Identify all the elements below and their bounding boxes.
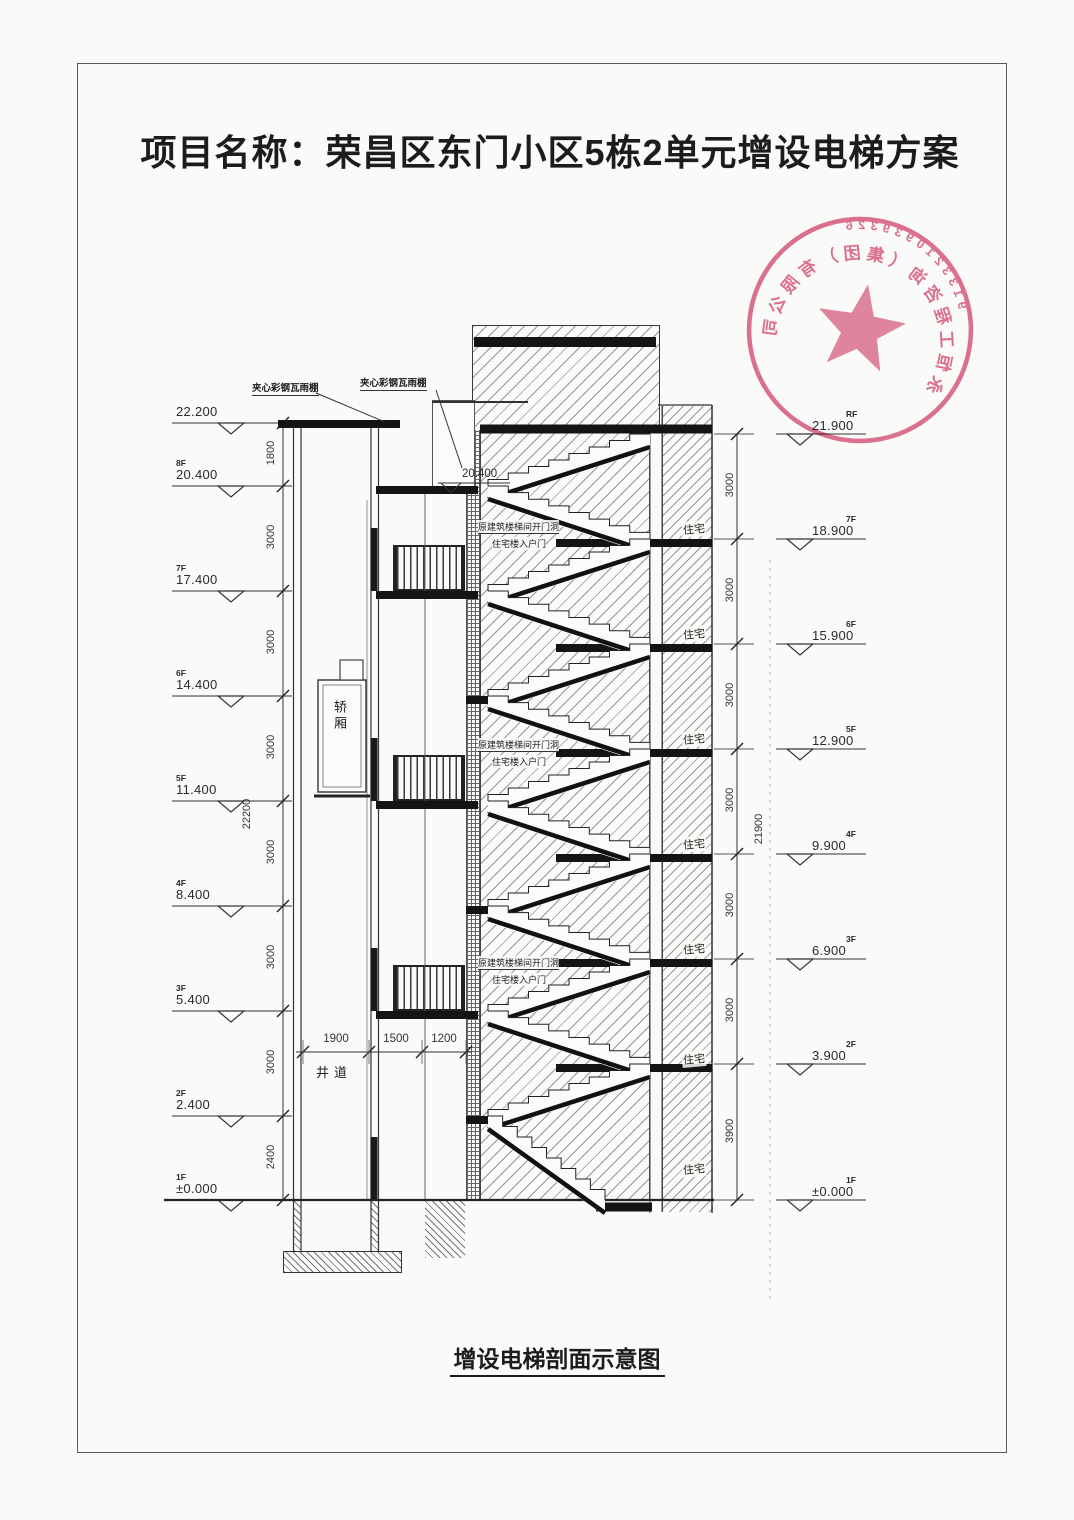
- floor-label: 3F: [846, 934, 856, 944]
- elevation-left: 17.400: [176, 572, 218, 587]
- dim-shaft-width: 1900: [311, 1033, 361, 1045]
- dim-left: 3000: [265, 830, 277, 874]
- residence-label: 住宅: [681, 625, 706, 643]
- residence-label: 住宅: [681, 1160, 706, 1178]
- dim-bridge-width: 1500: [371, 1033, 421, 1045]
- shaft-label: 井道: [316, 1062, 352, 1081]
- residence-label: 住宅: [681, 520, 706, 538]
- elevation-left: ±0.000: [176, 1181, 217, 1196]
- stair-door-note2: 住宅楼入户门: [492, 537, 546, 550]
- stair-door-note: 原建筑楼梯间开门洞: [478, 520, 559, 533]
- pit-wall-right: [371, 1200, 378, 1251]
- dim-right: 3000: [724, 988, 736, 1032]
- residence-label: 住宅: [681, 940, 706, 958]
- dim-right-total: 21900: [753, 807, 765, 851]
- residence-label: 住宅: [681, 1050, 706, 1068]
- elevation-left: 11.400: [176, 782, 217, 797]
- elevation-left: 2.400: [176, 1097, 210, 1112]
- stamp-star-icon: [810, 277, 911, 375]
- canopy-annotation: 夹心彩钢瓦雨棚: [360, 375, 427, 391]
- dim-left: 3000: [265, 935, 277, 979]
- elevation-mid-landing: 20.400: [462, 468, 497, 480]
- dim-left: 3000: [265, 725, 277, 769]
- elevation-left: 20.400: [176, 467, 218, 482]
- residence-label: 住宅: [681, 835, 706, 853]
- elevation-left-rooftop: 22.200: [176, 404, 218, 419]
- elevation-right: 12.900: [812, 733, 854, 748]
- stair-door-note: 原建筑楼梯间开门洞: [478, 738, 559, 751]
- dim-left: 3000: [265, 515, 277, 559]
- elevation-left: 8.400: [176, 887, 210, 902]
- residence-label: 住宅: [681, 730, 706, 748]
- drawing-sheet: 项目名称：荣昌区东门小区5栋2单元增设电梯方案 22.200 8F 20.400…: [0, 0, 1074, 1520]
- elevator-car-label: 轿厢: [330, 700, 349, 770]
- elevation-right: 9.900: [812, 838, 846, 853]
- dim-left: 1800: [265, 431, 277, 475]
- elevation-right: ±0.000: [812, 1184, 853, 1199]
- elevation-right: 18.900: [812, 523, 854, 538]
- dim-wall-width: 1200: [419, 1033, 469, 1045]
- company-stamp: 9133210939326 永恒工程咨询（集团）有限公司: [721, 191, 999, 469]
- canopy-annotation: 夹心彩钢瓦雨棚: [252, 380, 319, 396]
- bridge-railing: [397, 755, 461, 801]
- wall-footing: [425, 1200, 465, 1258]
- dim-left-total: 22200: [241, 792, 253, 836]
- stair-front-wall: [466, 430, 480, 1200]
- dim-right: 3000: [724, 778, 736, 822]
- bridge-railing: [397, 965, 461, 1011]
- elevation-right: 6.900: [812, 943, 846, 958]
- dim-right: 3000: [724, 463, 736, 507]
- page-title: 项目名称：荣昌区东门小区5栋2单元增设电梯方案: [120, 124, 980, 176]
- elevation-left: 14.400: [176, 677, 218, 692]
- dim-right: 3000: [724, 673, 736, 717]
- bridge-railing: [397, 545, 461, 591]
- dim-left: 3000: [265, 1040, 277, 1084]
- stair-tower-section: [472, 325, 660, 432]
- stair-door-note: 原建筑楼梯间开门洞: [478, 956, 559, 969]
- stair-door-note2: 住宅楼入户门: [492, 973, 546, 986]
- dim-right: 3900: [724, 1109, 736, 1153]
- elevation-left: 5.400: [176, 992, 210, 1007]
- pit-wall-left: [294, 1200, 301, 1251]
- dim-right: 3000: [724, 568, 736, 612]
- dim-left: 2400: [265, 1135, 277, 1179]
- elevation-right: 15.900: [812, 628, 854, 643]
- dim-left: 3000: [265, 620, 277, 664]
- elevator-pit-slab: [283, 1251, 402, 1273]
- floor-label: 2F: [846, 1039, 856, 1049]
- floor-label: 4F: [846, 829, 856, 839]
- dim-right: 3000: [724, 883, 736, 927]
- stair-door-note2: 住宅楼入户门: [492, 755, 546, 768]
- elevation-right: 3.900: [812, 1048, 846, 1063]
- figure-caption: 增设电梯剖面示意图: [407, 1340, 707, 1374]
